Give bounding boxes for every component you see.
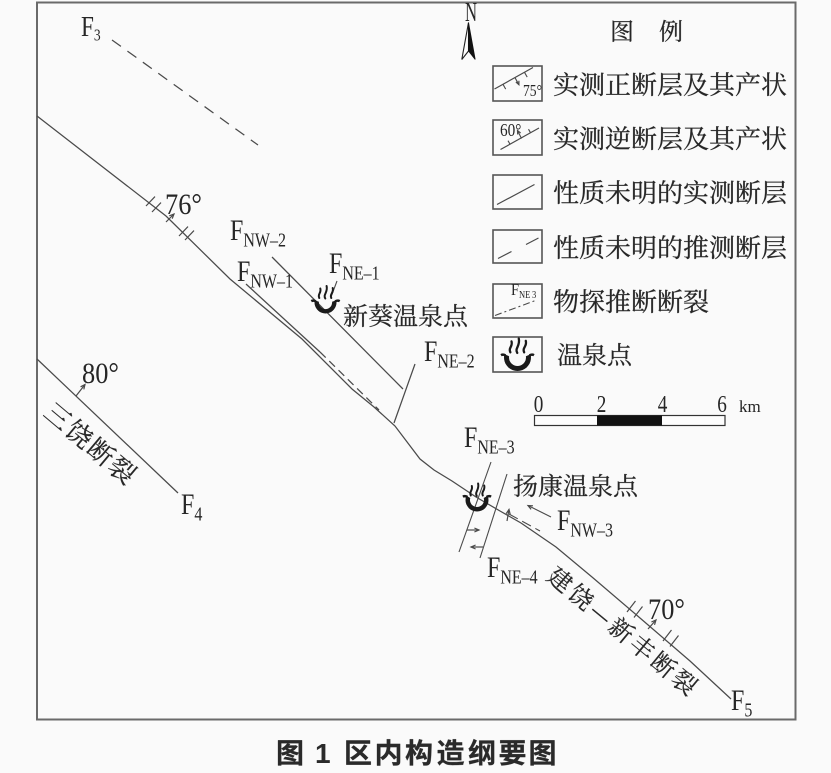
svg-text:km: km bbox=[739, 397, 761, 416]
svg-text:80°: 80° bbox=[82, 358, 119, 391]
svg-text:N: N bbox=[465, 0, 477, 27]
svg-text:75°: 75° bbox=[523, 82, 542, 101]
svg-text:FNE–3: FNE–3 bbox=[464, 420, 515, 457]
svg-text:76°: 76° bbox=[165, 189, 202, 222]
svg-text:60°: 60° bbox=[500, 120, 521, 140]
svg-text:F5: F5 bbox=[731, 683, 752, 720]
svg-text:FNW–3: FNW–3 bbox=[557, 503, 613, 540]
svg-text:4: 4 bbox=[658, 391, 668, 418]
svg-text:FNW–2: FNW–2 bbox=[230, 213, 286, 250]
svg-text:FNW–1: FNW–1 bbox=[237, 254, 293, 291]
svg-text:6: 6 bbox=[717, 391, 727, 418]
svg-text:F3: F3 bbox=[81, 11, 101, 45]
svg-text:0: 0 bbox=[534, 391, 544, 418]
svg-text:1: 1 bbox=[315, 738, 331, 769]
svg-text:FNE–1: FNE–1 bbox=[329, 246, 380, 283]
svg-text:F4: F4 bbox=[181, 487, 202, 524]
svg-text:70°: 70° bbox=[648, 594, 685, 627]
svg-text:2: 2 bbox=[597, 391, 607, 418]
svg-text:FNE–4: FNE–4 bbox=[487, 550, 538, 587]
svg-text:FNE–2: FNE–2 bbox=[424, 334, 475, 371]
